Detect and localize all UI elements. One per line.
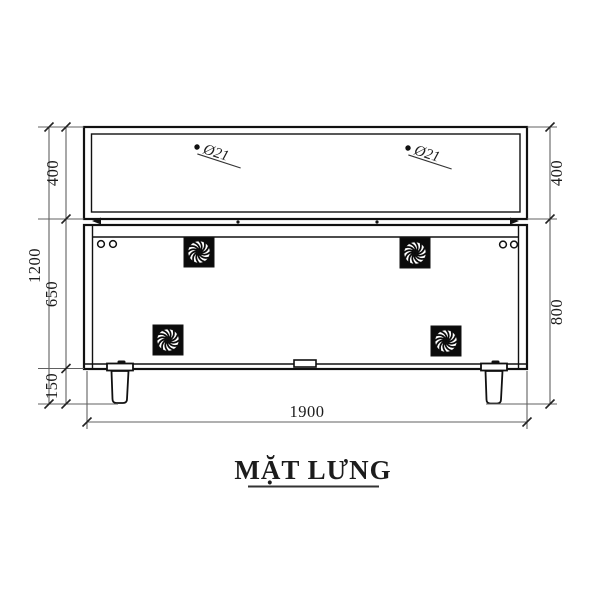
leg-mount-plate: [481, 364, 507, 371]
dim-label-right-upper: 400: [547, 160, 566, 186]
hole-marker-dot: [405, 145, 412, 152]
fan-vent-top-left: [184, 237, 214, 267]
screw-hole: [500, 241, 507, 248]
rail-screw-dot-right: [375, 220, 378, 223]
drawing-title: MẶT LƯNG: [234, 455, 391, 485]
hutch-outer-outline: [84, 127, 527, 219]
leg-mount-plate: [107, 364, 133, 371]
screw-hole: [110, 241, 117, 248]
screw-hole: [511, 241, 518, 248]
cabinet-back-view: [84, 127, 527, 404]
technical-drawing-page: Ø21 Ø21 400 650 150: [0, 0, 600, 600]
leg-left: [107, 361, 133, 404]
fan-vent-bottom-left: [153, 325, 183, 355]
screw-hole: [98, 241, 105, 248]
dim-label-upper-height: 400: [43, 160, 62, 186]
hutch-inner-outline: [92, 134, 521, 212]
fan-vent-bottom-right: [431, 326, 461, 356]
hole-diameter-label: Ø21: [411, 142, 441, 166]
dim-label-overall-height: 1200: [25, 248, 44, 283]
leg-body: [486, 371, 503, 404]
rail-screw-dot-left: [236, 220, 239, 223]
leg-right: [481, 361, 507, 404]
back-view-drawing-canvas: Ø21 Ø21 400 650 150: [0, 0, 600, 600]
hole-marker-dot: [194, 144, 201, 151]
hole-diameter-label: Ø21: [200, 141, 230, 165]
hole-callout-right: Ø21: [403, 140, 456, 171]
hole-callout-left: Ø21: [192, 139, 245, 170]
leg-body: [112, 371, 129, 403]
dim-label-right-lower: 800: [547, 299, 566, 325]
dim-label-leg-height: 150: [42, 373, 61, 399]
bottom-center-connector: [294, 360, 316, 367]
fan-vent-top-right: [400, 238, 430, 268]
dim-label-middle-height: 650: [42, 281, 61, 307]
dim-label-width: 1900: [290, 402, 325, 421]
screw-hole-group: [98, 241, 518, 248]
